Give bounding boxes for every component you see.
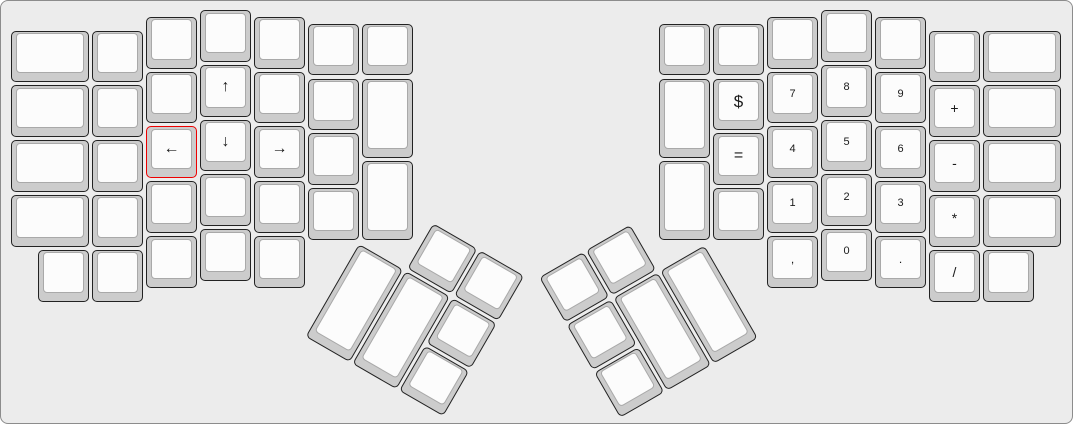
key-blank[interactable] <box>146 181 197 233</box>
keycap-top <box>151 74 192 114</box>
key-blank[interactable] <box>659 161 710 240</box>
keycap-top <box>97 33 138 73</box>
keycap-top <box>205 232 246 272</box>
keycap-top <box>16 197 84 237</box>
key-label: . <box>899 253 902 265</box>
key-blank[interactable] <box>659 24 710 76</box>
key-label: , <box>791 253 794 265</box>
key-blank[interactable] <box>11 31 89 83</box>
key-asterisk[interactable]: * <box>929 195 980 247</box>
keycap-top: 4 <box>772 129 813 169</box>
key-blank[interactable] <box>11 140 89 192</box>
keycap-top: → <box>259 129 300 169</box>
key-blank[interactable] <box>983 195 1061 247</box>
key-period[interactable]: . <box>875 236 926 288</box>
key-label: + <box>950 101 958 115</box>
keycap-top: , <box>772 239 813 279</box>
keycap-top <box>97 197 138 237</box>
key-blank[interactable] <box>983 85 1061 137</box>
keycap-top <box>988 33 1056 73</box>
key-label: 9 <box>897 89 903 100</box>
key-6[interactable]: 6 <box>875 126 926 178</box>
key-blank[interactable] <box>254 236 305 288</box>
keycap-top <box>988 197 1056 237</box>
key-label: 5 <box>843 137 849 148</box>
key-label: / <box>953 265 957 279</box>
keycap-top <box>97 252 138 292</box>
keycap-top <box>97 88 138 128</box>
key-blank[interactable] <box>308 188 359 240</box>
key-0[interactable]: 0 <box>821 229 872 281</box>
key-dollar[interactable]: $ <box>713 79 764 131</box>
key-blank[interactable] <box>11 85 89 137</box>
key-label: - <box>952 156 957 170</box>
key-equals[interactable]: = <box>713 133 764 185</box>
key-8[interactable]: 8 <box>821 65 872 117</box>
keycap-top: 8 <box>826 67 867 107</box>
key-blank[interactable] <box>713 24 764 76</box>
keycap-top <box>313 136 354 176</box>
key-blank[interactable] <box>767 17 818 69</box>
key-label: → <box>272 141 288 157</box>
key-blank[interactable] <box>254 17 305 69</box>
key-blank[interactable] <box>308 79 359 131</box>
key-up-arrow[interactable]: ↑ <box>200 65 251 117</box>
keycap-top: ↓ <box>205 122 246 162</box>
keycap-top: 5 <box>826 122 867 162</box>
key-blank[interactable] <box>254 72 305 124</box>
keycap-top <box>151 184 192 224</box>
keycap-top: $ <box>718 81 759 121</box>
key-blank[interactable] <box>200 10 251 62</box>
keycap-top <box>313 26 354 66</box>
keycap-top <box>718 26 759 66</box>
keycap-top <box>97 143 138 183</box>
keycap-top <box>772 19 813 59</box>
key-9[interactable]: 9 <box>875 72 926 124</box>
key-label: ← <box>164 141 180 157</box>
keycap-top <box>826 13 867 53</box>
key-plus[interactable]: + <box>929 85 980 137</box>
keycap-top: 7 <box>772 74 813 114</box>
keycap-top: . <box>880 239 921 279</box>
keycap-top <box>16 88 84 128</box>
keycap-top <box>151 239 192 279</box>
key-blank[interactable] <box>92 31 143 83</box>
key-minus[interactable]: - <box>929 140 980 192</box>
key-label: * <box>952 211 957 225</box>
keycap-top <box>205 13 246 53</box>
key-slash[interactable]: / <box>929 250 980 302</box>
key-blank[interactable] <box>146 236 197 288</box>
keycap-top <box>205 177 246 217</box>
key-blank[interactable] <box>92 250 143 302</box>
key-1[interactable]: 1 <box>767 181 818 233</box>
key-4[interactable]: 4 <box>767 126 818 178</box>
key-label: ↓ <box>222 134 230 150</box>
key-blank[interactable] <box>821 10 872 62</box>
keycap-top <box>367 163 408 231</box>
key-blank[interactable] <box>92 195 143 247</box>
keycap-top: = <box>718 136 759 176</box>
keycap-top <box>988 143 1056 183</box>
key-blank[interactable] <box>200 174 251 226</box>
key-label: = <box>734 148 743 164</box>
key-label: 1 <box>789 198 795 209</box>
key-blank[interactable] <box>875 17 926 69</box>
keyboard-layout-board: ←↑↓→$=741,8520963.+-*/ <box>0 0 1073 424</box>
keycap-top <box>988 88 1056 128</box>
keycap-top: + <box>934 88 975 128</box>
keycap-top <box>664 163 705 231</box>
keycap-top: 0 <box>826 232 867 272</box>
keycap-top <box>934 33 975 73</box>
key-label: 6 <box>897 144 903 155</box>
keycap-top <box>367 26 408 66</box>
key-blank[interactable] <box>983 250 1034 302</box>
keycap-top <box>259 74 300 114</box>
keycap-top: 6 <box>880 129 921 169</box>
key-3[interactable]: 3 <box>875 181 926 233</box>
keycap-top <box>664 26 705 66</box>
key-blank[interactable] <box>11 195 89 247</box>
key-blank[interactable] <box>659 79 710 158</box>
key-blank[interactable] <box>92 85 143 137</box>
keycap-top <box>151 19 192 59</box>
key-label: 8 <box>843 82 849 93</box>
key-5[interactable]: 5 <box>821 120 872 172</box>
keycap-top: / <box>934 252 975 292</box>
key-blank[interactable] <box>713 188 764 240</box>
keycap-top: * <box>934 197 975 237</box>
key-label: 4 <box>789 144 795 155</box>
keycap-top <box>718 191 759 231</box>
key-blank[interactable] <box>983 140 1061 192</box>
keycap-top: ← <box>151 129 192 169</box>
key-blank[interactable] <box>38 250 89 302</box>
keycap-top <box>367 81 408 149</box>
keycap-top: 9 <box>880 74 921 114</box>
key-label: ↑ <box>222 79 230 95</box>
keycap-top <box>16 33 84 73</box>
keycap-top <box>313 191 354 231</box>
key-right-arrow[interactable]: → <box>254 126 305 178</box>
key-down-arrow[interactable]: ↓ <box>200 120 251 172</box>
key-blank[interactable] <box>146 17 197 69</box>
key-label: 7 <box>789 89 795 100</box>
key-left-arrow[interactable]: ← <box>146 126 197 178</box>
key-label: $ <box>734 93 743 110</box>
keycap-top: 3 <box>880 184 921 224</box>
key-blank[interactable] <box>254 181 305 233</box>
keycap-top: 1 <box>772 184 813 224</box>
keycap-top <box>259 184 300 224</box>
key-comma[interactable]: , <box>767 236 818 288</box>
keycap-top: ↑ <box>205 67 246 107</box>
key-label: 2 <box>843 192 849 203</box>
keycap-top: - <box>934 143 975 183</box>
keycap-top <box>988 252 1029 292</box>
key-label: 3 <box>897 198 903 209</box>
key-blank[interactable] <box>92 140 143 192</box>
keycap-top <box>664 81 705 149</box>
keycap-top <box>880 19 921 59</box>
keycap-top <box>259 19 300 59</box>
key-blank[interactable] <box>308 24 359 76</box>
key-7[interactable]: 7 <box>767 72 818 124</box>
key-2[interactable]: 2 <box>821 174 872 226</box>
key-blank[interactable] <box>362 79 413 158</box>
keycap-top: 2 <box>826 177 867 217</box>
keycap-top <box>313 81 354 121</box>
keycap-top <box>259 239 300 279</box>
key-blank[interactable] <box>362 24 413 76</box>
key-blank[interactable] <box>146 72 197 124</box>
keycap-top <box>43 252 84 292</box>
key-blank[interactable] <box>308 133 359 185</box>
key-blank[interactable] <box>929 31 980 83</box>
key-blank[interactable] <box>983 31 1061 83</box>
key-blank[interactable] <box>362 161 413 240</box>
keycap-top <box>16 143 84 183</box>
key-label: 0 <box>843 246 849 257</box>
key-blank[interactable] <box>200 229 251 281</box>
